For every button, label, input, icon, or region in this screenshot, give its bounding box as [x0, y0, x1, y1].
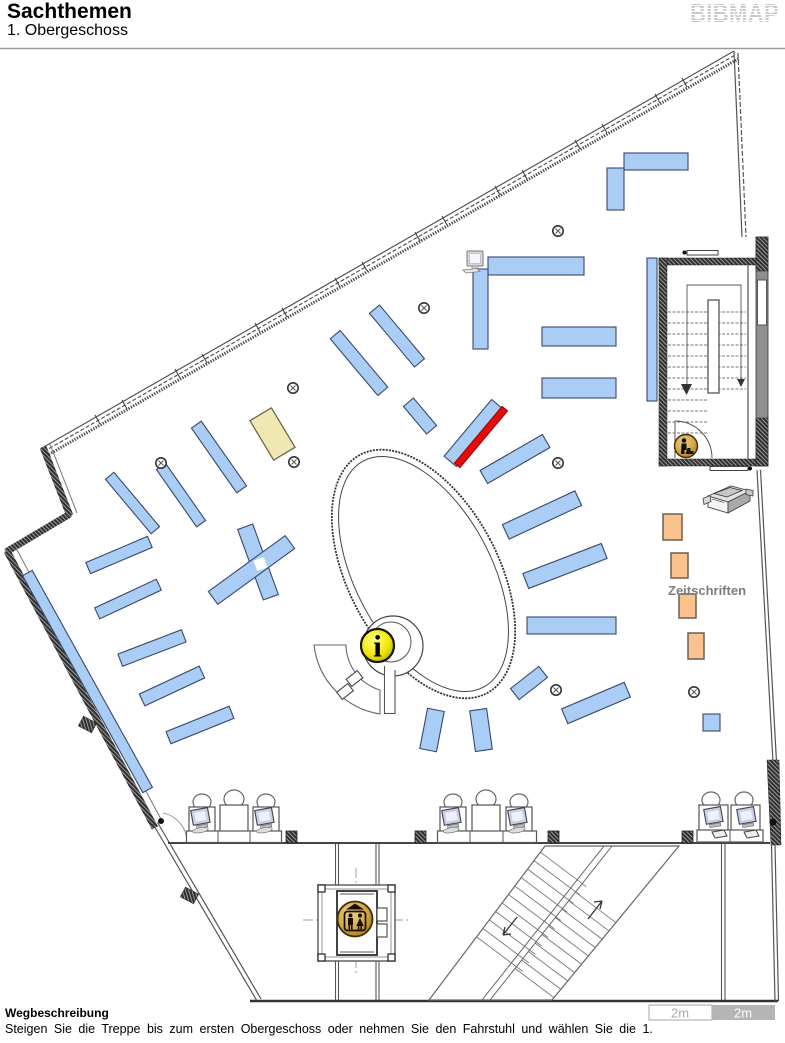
svg-text:Zeitschriften: Zeitschriften — [668, 583, 746, 598]
svg-text:BIBMAP: BIBMAP — [690, 0, 779, 28]
svg-text:2m: 2m — [671, 1006, 689, 1021]
svg-text:2m: 2m — [734, 1006, 752, 1021]
svg-text:i: i — [373, 629, 382, 664]
